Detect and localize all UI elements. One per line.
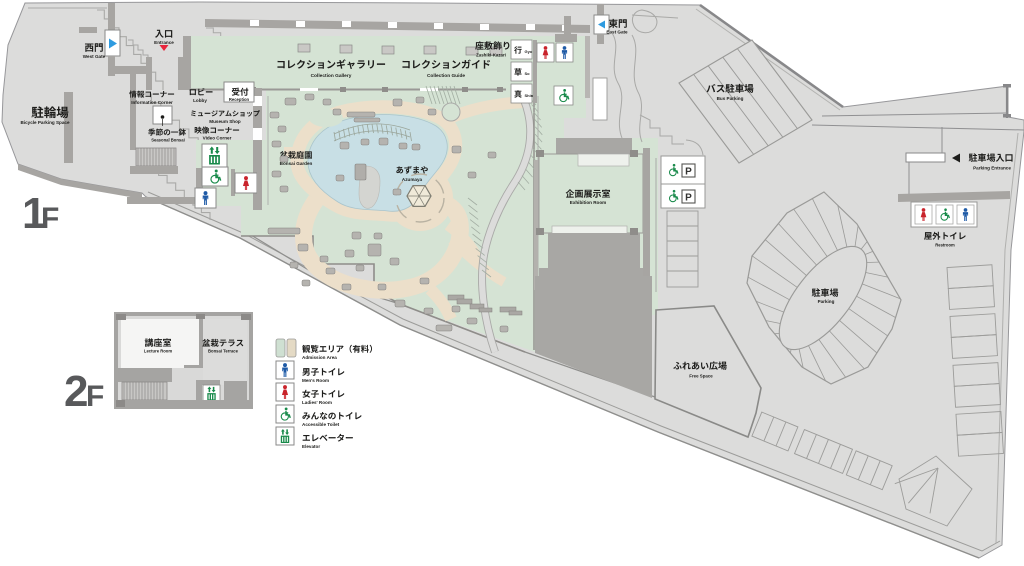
svg-text:Restroom: Restroom [935,243,955,248]
svg-text:F: F [41,202,59,235]
svg-text:Admission Area: Admission Area [302,355,337,360]
svg-text:Free Space: Free Space [689,374,713,379]
svg-text:East Gate: East Gate [606,30,628,35]
svg-text:Ladies' Room: Ladies' Room [302,400,332,405]
svg-text:Museum Shop: Museum Shop [209,119,241,124]
svg-text:West Gate: West Gate [83,54,106,59]
svg-text:Information Corner: Information Corner [131,100,173,105]
svg-text:2: 2 [64,367,88,416]
svg-text:Gyo: Gyo [525,49,533,54]
svg-text:Elevator: Elevator [302,444,320,449]
svg-text:F: F [86,380,104,413]
svg-text:Bicycle Parking Space: Bicycle Parking Space [20,120,69,125]
svg-text:Entrance: Entrance [154,40,174,45]
svg-text:Collection Gallery: Collection Gallery [311,73,352,79]
svg-text:Video Corner: Video Corner [203,136,232,141]
svg-text:P: P [685,167,692,178]
svg-text:Bus Parking: Bus Parking [717,96,744,101]
svg-text:Lecture Room: Lecture Room [144,349,172,354]
svg-text:Lobby: Lobby [193,98,207,103]
svg-text:Collection Guide: Collection Guide [427,73,465,79]
svg-text:Parking Entrance: Parking Entrance [973,166,1011,171]
svg-text:Exhibition Room: Exhibition Room [570,200,607,205]
svg-text:Bonsai Terrace: Bonsai Terrace [208,349,239,354]
svg-text:Reception: Reception [229,97,250,102]
svg-text:Men's Room: Men's Room [302,378,329,383]
svg-text:Seasonal Bonsai: Seasonal Bonsai [151,138,185,143]
svg-text:So: So [525,71,531,76]
svg-text:Azumaya: Azumaya [402,177,423,182]
svg-text:Parking: Parking [818,299,835,304]
svg-text:Shin: Shin [525,93,534,98]
svg-text:Accessible Toilet: Accessible Toilet [302,422,340,427]
svg-text:P: P [685,193,692,204]
svg-text:Zashiki-Kazari: Zashiki-Kazari [476,53,506,58]
